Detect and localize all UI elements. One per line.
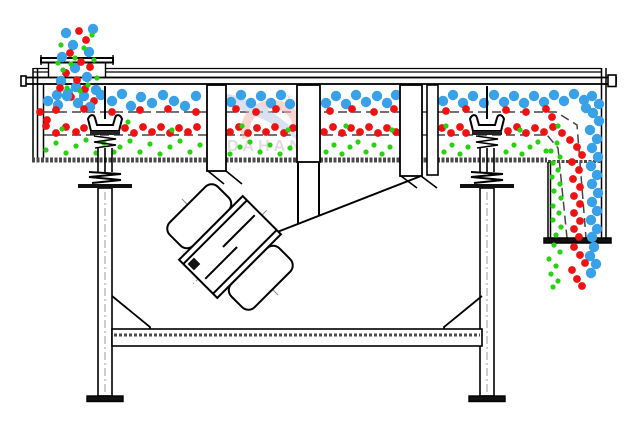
particle-red: [232, 105, 240, 113]
particle-red: [73, 76, 81, 84]
particle-blue: [158, 90, 168, 100]
particle-green: [519, 151, 524, 156]
vibrating-screen-diagram: DAHAN ®: [0, 0, 638, 428]
particle-green: [72, 55, 77, 60]
right-foot-pad: [469, 396, 505, 402]
particle-green: [556, 210, 561, 215]
particle-red: [578, 282, 586, 290]
particle-red: [320, 128, 328, 136]
particle-blue: [107, 96, 117, 106]
left-cup-base: [90, 131, 120, 135]
particle-blue: [438, 96, 448, 106]
particle-green: [83, 137, 88, 142]
particle-blue: [321, 98, 331, 108]
particle-blue: [136, 92, 146, 102]
particle-red: [456, 123, 464, 131]
particle-blue: [594, 99, 604, 109]
particle-red: [566, 136, 574, 144]
particle-red: [184, 128, 192, 136]
particle-blue: [448, 90, 458, 100]
particle-green: [277, 151, 282, 156]
right-lower-spring: [471, 172, 503, 183]
particle-green: [257, 149, 262, 154]
particle-blue: [382, 98, 392, 108]
particle-blue: [68, 40, 78, 50]
particle-blue: [126, 101, 136, 111]
particle-green: [457, 151, 462, 156]
particle-green: [63, 150, 68, 155]
particle-blue: [331, 91, 341, 101]
particle-blue: [586, 161, 596, 171]
particle-red: [75, 27, 83, 35]
particle-green: [68, 61, 73, 66]
particle-green: [147, 141, 152, 146]
particle-blue: [43, 96, 53, 106]
particle-blue: [169, 96, 179, 106]
motor-mount: [267, 162, 421, 236]
particle-green: [59, 126, 64, 131]
particle-red: [175, 124, 183, 132]
left-foot-pad: [87, 396, 123, 402]
particle-green: [549, 174, 554, 179]
particle-blue: [180, 101, 190, 111]
particle-blue: [82, 72, 92, 82]
particle-red: [42, 122, 50, 130]
particle-green: [197, 142, 202, 147]
particle-green: [548, 148, 553, 153]
particle-red: [578, 151, 586, 159]
particle-red: [540, 128, 548, 136]
particle-red: [66, 49, 74, 57]
particle-green: [239, 123, 244, 128]
particle-red: [252, 108, 260, 116]
particle-red: [226, 128, 234, 136]
screen-box-cover: [33, 69, 601, 73]
particle-green: [60, 67, 65, 72]
particle-green: [137, 149, 142, 154]
particle-blue: [587, 179, 597, 189]
particle-red: [52, 129, 60, 137]
particle-green: [227, 151, 232, 156]
particle-red: [570, 192, 578, 200]
particle-blue: [592, 170, 602, 180]
particle-red: [338, 129, 346, 137]
particle-red: [56, 84, 64, 92]
particle-blue: [276, 90, 286, 100]
particle-red: [462, 105, 470, 113]
diagram-svg: DAHAN ®: [0, 0, 638, 428]
particle-green: [91, 57, 96, 62]
particle-blue: [593, 152, 603, 162]
particle-green: [167, 144, 172, 149]
particle-blue: [372, 91, 382, 101]
particle-blue: [236, 90, 246, 100]
particle-green: [379, 151, 384, 156]
particle-green: [73, 143, 78, 148]
particle-green: [355, 139, 360, 144]
particle-red: [462, 129, 470, 137]
particle-green: [177, 138, 182, 143]
particle-blue: [586, 215, 596, 225]
particle-blue: [361, 97, 371, 107]
particle-green: [517, 127, 522, 132]
particle-green: [550, 160, 555, 165]
particle-green: [389, 127, 394, 132]
particle-green: [85, 82, 90, 87]
particle-red: [447, 129, 455, 137]
particle-green: [77, 88, 82, 93]
particle-blue: [592, 206, 602, 216]
particle-red: [271, 123, 279, 131]
particle-green: [503, 149, 508, 154]
right-gusset: [444, 296, 482, 329]
particle-green: [555, 123, 560, 128]
particle-blue: [519, 98, 529, 108]
particle-red: [570, 209, 578, 217]
particle-red: [164, 105, 172, 113]
particle-red: [442, 107, 450, 115]
particle-red: [77, 58, 85, 66]
particle-red: [575, 166, 583, 174]
particle-blue: [594, 116, 604, 126]
particle-red: [502, 106, 510, 114]
particle-green: [554, 140, 559, 145]
particle-green: [169, 127, 174, 132]
particle-red: [157, 123, 165, 131]
particle-blue: [61, 28, 71, 38]
right-spring-plate: [460, 184, 514, 188]
particle-green: [343, 123, 348, 128]
particle-red: [86, 63, 94, 71]
particle-blue: [529, 91, 539, 101]
particle-blue: [285, 99, 295, 109]
particle-green: [527, 144, 532, 149]
particle-green: [323, 149, 328, 154]
particle-green: [187, 149, 192, 154]
particle-red: [374, 129, 382, 137]
particle-red: [575, 233, 583, 241]
particle-green: [465, 144, 470, 149]
hanger-bar-a: [207, 85, 226, 171]
particle-red: [504, 127, 512, 135]
particle-green: [553, 263, 558, 268]
particle-green: [94, 75, 99, 80]
particle-blue: [499, 97, 509, 107]
particle-red: [253, 124, 261, 132]
particle-green: [89, 32, 94, 37]
particle-green: [127, 138, 132, 143]
vibration-motor: [145, 162, 315, 332]
left-suspension: [78, 86, 132, 188]
particle-red: [329, 123, 337, 131]
particle-green: [371, 142, 376, 147]
particle-green: [285, 127, 290, 132]
particle-red: [542, 105, 550, 113]
left-gusset: [112, 296, 150, 329]
particle-red: [80, 124, 88, 132]
left-lower-spring: [89, 172, 121, 183]
particle-red: [390, 105, 398, 113]
particle-blue: [191, 91, 201, 101]
particle-blue: [585, 125, 595, 135]
particle-blue: [62, 91, 72, 101]
particle-red: [52, 106, 60, 114]
cross-beam: [112, 329, 482, 346]
particle-blue: [593, 188, 603, 198]
particle-red: [130, 129, 138, 137]
particle-red: [272, 105, 280, 113]
particle-green: [237, 144, 242, 149]
particle-green: [548, 271, 553, 276]
particle-blue: [587, 197, 597, 207]
particle-green: [267, 142, 272, 147]
particle-blue: [468, 91, 478, 101]
particle-green: [553, 232, 558, 237]
hanger-bar-d: [427, 85, 438, 175]
particle-red: [80, 105, 88, 113]
particle-green: [550, 284, 555, 289]
particle-red: [244, 129, 252, 137]
particle-green: [125, 119, 130, 124]
particle-green: [64, 85, 69, 90]
particle-blue: [591, 259, 601, 269]
particle-green: [511, 142, 516, 147]
particle-blue: [351, 90, 361, 100]
particle-green: [557, 154, 562, 159]
right-upper-spring: [476, 136, 498, 148]
left-spring-plate: [78, 184, 132, 188]
particle-blue: [549, 90, 559, 100]
particle-red: [576, 217, 584, 225]
particle-red: [136, 106, 144, 114]
particle-blue: [509, 91, 519, 101]
particle-green: [557, 249, 562, 254]
particle-red: [569, 175, 577, 183]
particle-blue: [587, 143, 597, 153]
particle-red: [573, 275, 581, 283]
particle-green: [247, 139, 252, 144]
particle-red: [522, 129, 530, 137]
particle-red: [581, 259, 589, 267]
particle-red: [365, 123, 373, 131]
particle-red: [568, 266, 576, 274]
particle-red: [348, 105, 356, 113]
rail-bar: [22, 78, 616, 85]
particle-blue: [589, 242, 599, 252]
particle-red: [573, 143, 581, 151]
particle-red: [108, 108, 116, 116]
particle-green: [347, 144, 352, 149]
particle-green: [543, 148, 548, 153]
particle-red: [36, 108, 44, 116]
particle-red: [326, 107, 334, 115]
particle-green: [287, 145, 292, 150]
particle-green: [53, 140, 58, 145]
particle-blue: [587, 91, 597, 101]
right-cup-base: [472, 131, 502, 135]
particle-green: [55, 60, 60, 65]
particle-blue: [586, 268, 596, 278]
particle-red: [370, 108, 378, 116]
particle-red: [576, 183, 584, 191]
particle-green: [449, 142, 454, 147]
particle-red: [121, 124, 129, 132]
particle-green: [43, 147, 48, 152]
particle-green: [557, 181, 562, 186]
particle-red: [139, 123, 147, 131]
particle-blue: [147, 98, 157, 108]
particle-green: [551, 242, 556, 247]
particle-green: [363, 149, 368, 154]
particle-green: [157, 151, 162, 156]
hanger-bar-c: [400, 85, 422, 176]
particle-green: [441, 149, 446, 154]
particle-red: [522, 108, 530, 116]
particle-green: [117, 144, 122, 149]
particle-red: [262, 128, 270, 136]
particle-green: [558, 224, 563, 229]
particle-blue: [592, 134, 602, 144]
particle-green: [331, 142, 336, 147]
rail-right-cap: [608, 75, 616, 87]
particle-red: [558, 129, 566, 137]
particle-green: [81, 45, 86, 50]
hanger-bar-b: [297, 85, 320, 162]
particle-green: [550, 203, 555, 208]
particle-red: [193, 123, 201, 131]
particle-red: [148, 128, 156, 136]
particle-red: [356, 128, 364, 136]
particle-red: [570, 225, 578, 233]
particle-blue: [256, 91, 266, 101]
particle-blue: [489, 90, 499, 100]
particle-green: [550, 217, 555, 222]
particle-green: [58, 42, 63, 47]
particle-red: [192, 108, 200, 116]
particle-red: [531, 124, 539, 132]
particle-blue: [117, 89, 127, 99]
particle-green: [443, 123, 448, 128]
rail-left-cap: [21, 76, 26, 86]
particle-green: [551, 188, 556, 193]
particle-green: [339, 151, 344, 156]
mount-diagonal: [267, 176, 421, 236]
particle-red: [576, 200, 584, 208]
particle-red: [576, 251, 584, 259]
particle-green: [546, 256, 551, 261]
particle-red: [548, 113, 556, 121]
particle-red: [72, 128, 80, 136]
particle-blue: [569, 89, 579, 99]
particle-blue: [587, 232, 597, 242]
particle-red: [570, 243, 578, 251]
particle-green: [555, 278, 560, 283]
base-frame: [87, 188, 505, 402]
particle-blue: [559, 96, 569, 106]
particle-red: [568, 158, 576, 166]
particle-red: [82, 36, 90, 44]
particle-green: [555, 167, 560, 172]
particle-blue: [246, 98, 256, 108]
particle-green: [535, 139, 540, 144]
particle-green: [387, 144, 392, 149]
particle-green: [558, 195, 563, 200]
